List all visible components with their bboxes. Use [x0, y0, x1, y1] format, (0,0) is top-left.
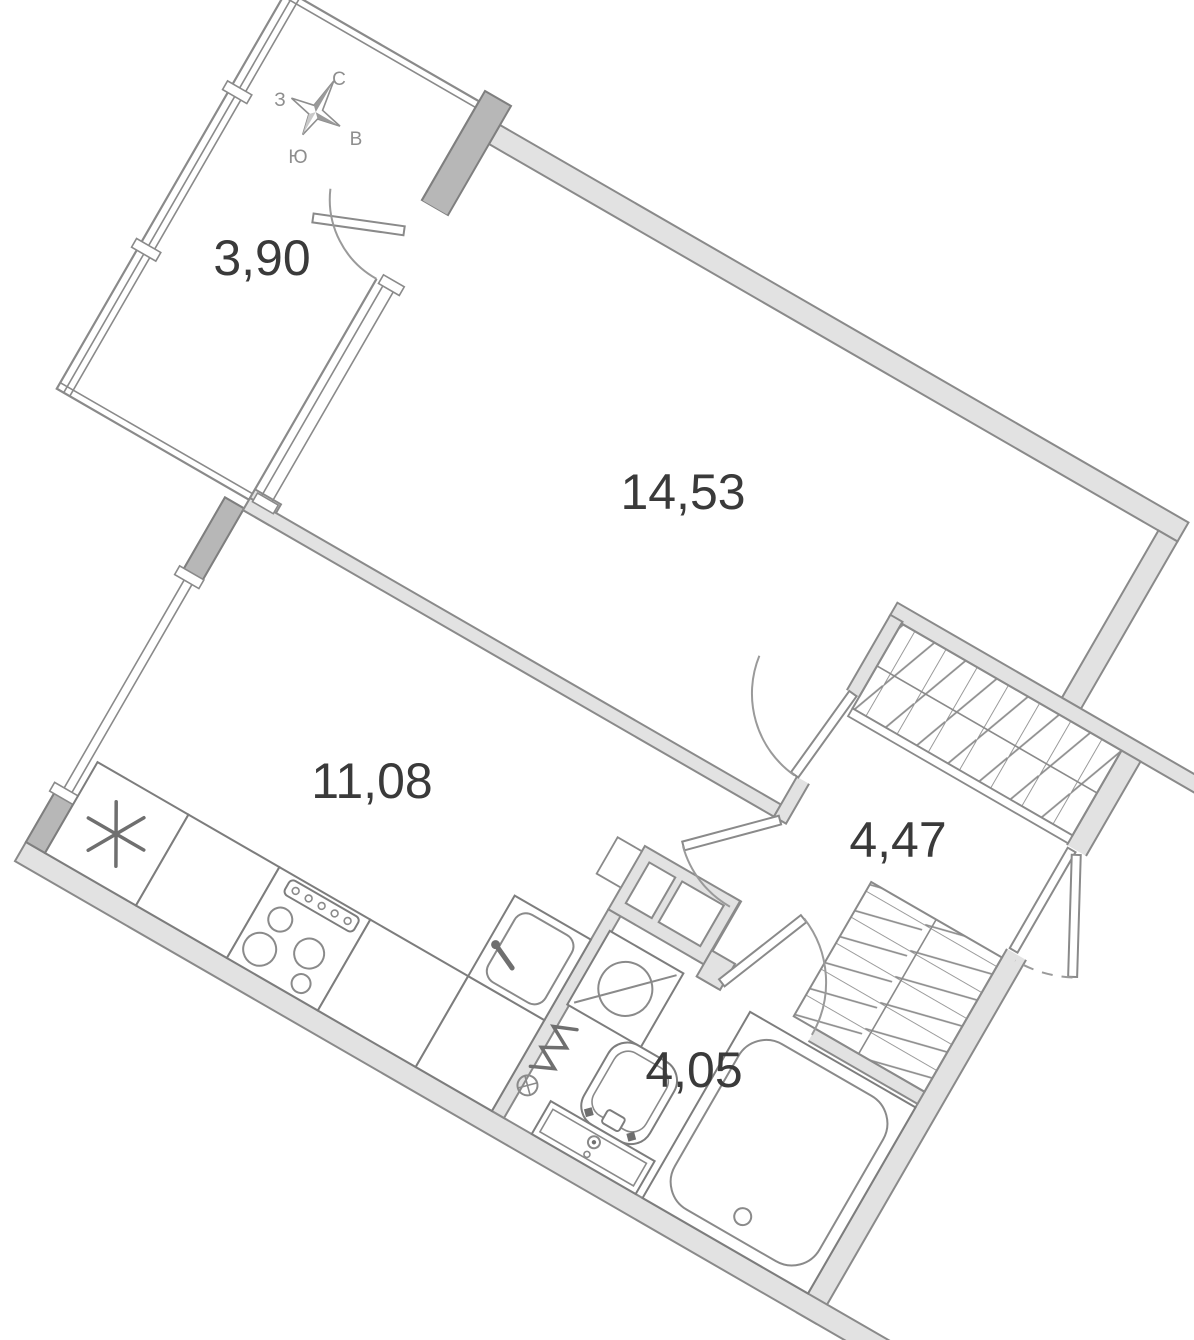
room-label-balcony: 3,90	[213, 230, 310, 286]
compass-south-label: Ю	[288, 147, 307, 168]
compass-east-label: В	[350, 129, 363, 150]
compass-north-label: С	[332, 69, 346, 90]
living-hall-door-leaf	[791, 691, 857, 777]
bath-door-leaf	[719, 915, 806, 986]
room-label-living: 14,53	[620, 464, 745, 520]
entry-door-leaf-closed	[1010, 848, 1076, 953]
room-label-hallway: 4,47	[849, 812, 946, 868]
floorplan-svg: 3,90 14,53 11,08 4,47 4,05 С З В Ю	[0, 0, 1194, 1340]
floorplan-page: 3,90 14,53 11,08 4,47 4,05 С З В Ю	[0, 0, 1194, 1340]
kitchen-fixtures	[45, 682, 591, 1111]
compass-west-label: З	[274, 90, 285, 111]
kitchen-window-glazing	[61, 577, 186, 794]
wall-top	[489, 125, 1188, 542]
kitchen-door-leaf	[682, 816, 781, 851]
room-label-bathroom: 4,05	[645, 1042, 742, 1098]
kitchen-window-glazing	[69, 581, 194, 798]
wall-right-upper	[1062, 531, 1178, 709]
room-label-kitchen: 11,08	[311, 753, 432, 809]
